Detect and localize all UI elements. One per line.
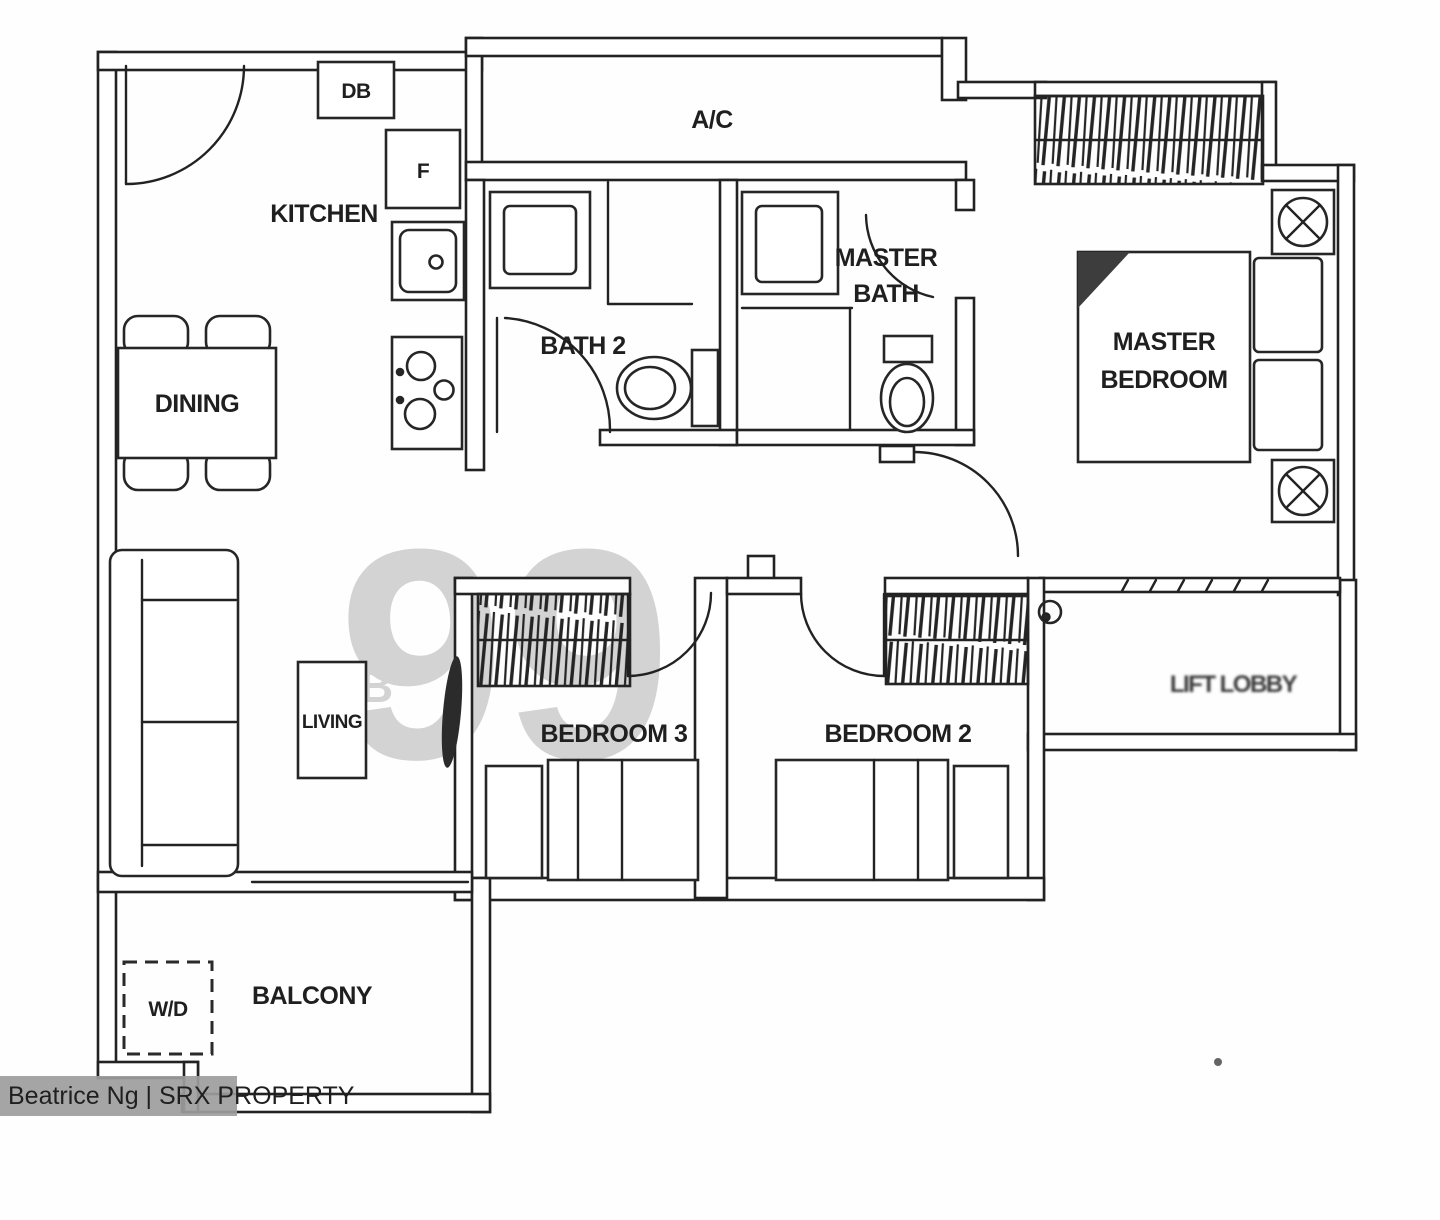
room-master-bath [742, 192, 933, 432]
bedroom3-label: BEDROOM 3 [541, 720, 688, 748]
wall-top-mbr-left [958, 82, 1046, 98]
wall-mbath-right-top [956, 180, 974, 210]
pillow-1 [1254, 258, 1322, 352]
balcony-label: BALCONY [252, 982, 373, 1010]
lobby-label: LIFT LOBBY [1170, 671, 1298, 698]
wall-top-wardrobe [1035, 82, 1275, 96]
mbath-toilet-bowl [881, 364, 933, 432]
wall-kitchen-bath2 [466, 180, 484, 470]
wall-bedroom-center [695, 578, 727, 898]
wall-top-kitchen [98, 52, 482, 70]
nightstand-bottom [1272, 460, 1334, 522]
master-bedroom-label-2: BEDROOM [1100, 366, 1227, 394]
ac-ledge-label: A/C [691, 106, 733, 134]
wall-baths-top [466, 162, 966, 180]
bath2-shower-screen [608, 182, 692, 304]
kitchen-label: KITCHEN [270, 200, 378, 228]
room-kitchen [318, 62, 464, 449]
living-label: LIVING [302, 712, 362, 733]
wall-bedroom2-right [1028, 578, 1044, 900]
floorplan-page: 99 B [0, 0, 1440, 1220]
agent-bar-text: Beatrice Ng | SRX PROPERTY [8, 1082, 355, 1110]
wall-bedroom3-top [455, 578, 630, 594]
wall-mbath-right-bot [956, 298, 974, 445]
master-bedroom-label-1: MASTER [1113, 328, 1216, 356]
fridge-label: F [417, 160, 430, 183]
wall-corridor-nib [748, 556, 774, 580]
bedroom2-side-table [954, 766, 1008, 878]
wall-bedroom2-top-right [885, 578, 1028, 594]
master-bed [1078, 252, 1250, 462]
washer-dryer-label: W/D [148, 998, 188, 1021]
suite-door-arc [914, 452, 1018, 556]
wall-ledge-left [466, 38, 482, 180]
wall-right-outer [1338, 165, 1354, 595]
wall-lobby-right [1340, 580, 1356, 750]
wall-lobby-top [1040, 578, 1340, 592]
floorplan-canvas: 99 B [0, 0, 1440, 1220]
mbath-shower-screen [742, 308, 852, 430]
wall-lobby-bottom [1028, 734, 1356, 750]
bedroom3-side-table [486, 766, 542, 878]
bedroom2-door-arc [801, 593, 884, 676]
room-bath2 [490, 182, 718, 426]
wall-bedroom2-top-left [727, 578, 801, 594]
wall-bath-divider [720, 180, 737, 445]
bath2-label: BATH 2 [540, 332, 625, 360]
wall-mbath-bottom [737, 430, 974, 445]
wall-bedrooms-bottom [455, 878, 1044, 900]
wall-bath2-bottom [600, 430, 737, 445]
wall-suite-door-stub [880, 446, 914, 462]
dining-label: DINING [155, 390, 240, 418]
db-label: DB [341, 80, 371, 103]
pillow-2 [1254, 360, 1322, 450]
door-stop-dot [1043, 614, 1050, 621]
bedroom2-bed [776, 760, 948, 880]
master-bath-label-2: BATH [853, 280, 919, 308]
wall-balcony-right [472, 878, 490, 1112]
scan-speck [1214, 1058, 1222, 1066]
bath2-toilet-tank [692, 350, 718, 426]
room-master-bedroom [1035, 96, 1334, 522]
entrance-door-arc [126, 66, 244, 184]
mbath-toilet-tank [884, 336, 932, 362]
master-bath-label-1: MASTER [835, 244, 938, 272]
wall-ledge-top [466, 38, 942, 56]
nightstand-top [1272, 190, 1334, 254]
bedroom2-label: BEDROOM 2 [825, 720, 972, 748]
